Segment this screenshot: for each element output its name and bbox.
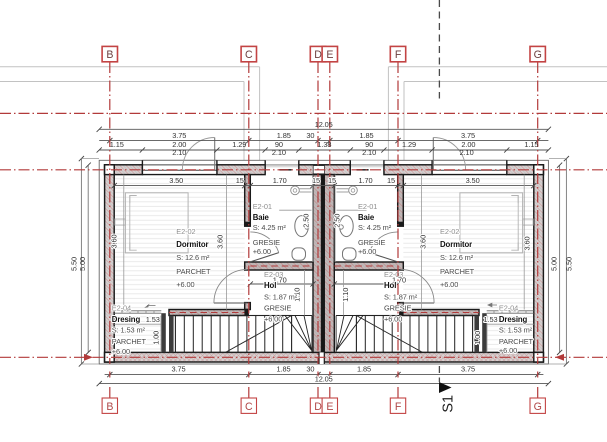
svg-text:1.15: 1.15 bbox=[110, 140, 124, 149]
svg-text:15: 15 bbox=[328, 176, 336, 185]
svg-text:+6.00: +6.00 bbox=[499, 346, 517, 355]
svg-text:Dormitor: Dormitor bbox=[176, 240, 208, 249]
svg-text:1.29: 1.29 bbox=[232, 140, 246, 149]
svg-text:1.38: 1.38 bbox=[317, 140, 331, 149]
svg-text:C: C bbox=[245, 49, 253, 61]
svg-text:1.10: 1.10 bbox=[341, 288, 350, 302]
svg-text:S1: S1 bbox=[441, 395, 457, 413]
svg-text:3.60: 3.60 bbox=[110, 235, 119, 249]
svg-text:E: E bbox=[326, 401, 333, 413]
svg-text:D: D bbox=[314, 49, 322, 61]
svg-text:2.50: 2.50 bbox=[302, 214, 311, 228]
svg-text:15: 15 bbox=[387, 176, 395, 185]
svg-text:D: D bbox=[314, 401, 322, 413]
svg-text:12.05: 12.05 bbox=[315, 120, 333, 129]
svg-text:3.75: 3.75 bbox=[461, 365, 475, 374]
svg-text:5.00: 5.00 bbox=[78, 257, 87, 271]
svg-text:2.50: 2.50 bbox=[332, 214, 341, 228]
svg-text:Baie: Baie bbox=[358, 213, 375, 222]
svg-text:+6.00: +6.00 bbox=[176, 280, 194, 289]
svg-text:F: F bbox=[395, 401, 402, 413]
svg-text:Hol: Hol bbox=[264, 281, 276, 290]
svg-text:F: F bbox=[395, 49, 402, 61]
svg-text:E2-04: E2-04 bbox=[499, 304, 518, 313]
svg-text:B: B bbox=[106, 49, 113, 61]
svg-text:12.05: 12.05 bbox=[315, 374, 333, 383]
svg-text:1.00: 1.00 bbox=[473, 331, 482, 345]
svg-text:GRESIE: GRESIE bbox=[264, 303, 291, 312]
svg-text:B: B bbox=[106, 401, 113, 413]
svg-text:15: 15 bbox=[312, 176, 320, 185]
svg-text:Dresing: Dresing bbox=[499, 315, 528, 324]
svg-text:PARCHET: PARCHET bbox=[176, 267, 211, 276]
svg-text:3.60: 3.60 bbox=[522, 237, 531, 251]
svg-text:E2-01: E2-01 bbox=[253, 202, 272, 211]
svg-text:E2-01: E2-01 bbox=[358, 202, 377, 211]
svg-text:PARCHET: PARCHET bbox=[440, 267, 475, 276]
svg-text:1.70: 1.70 bbox=[273, 176, 287, 185]
svg-text:1.29: 1.29 bbox=[402, 140, 416, 149]
svg-text:S: 1.87 m²: S: 1.87 m² bbox=[264, 292, 298, 301]
svg-text:E2-02: E2-02 bbox=[440, 227, 459, 236]
svg-text:S: 12.6 m²: S: 12.6 m² bbox=[440, 253, 474, 262]
svg-text:3.75: 3.75 bbox=[461, 131, 475, 140]
svg-text:S: 12.6 m²: S: 12.6 m² bbox=[176, 253, 210, 262]
svg-text:+6.00: +6.00 bbox=[384, 314, 402, 323]
svg-text:S: 4.25 m²: S: 4.25 m² bbox=[253, 223, 287, 232]
svg-text:5.00: 5.00 bbox=[549, 257, 558, 271]
svg-text:1.85: 1.85 bbox=[360, 131, 374, 140]
svg-text:+6.00: +6.00 bbox=[264, 314, 282, 323]
svg-text:2.10: 2.10 bbox=[362, 148, 376, 157]
svg-text:S: 1.53 m²: S: 1.53 m² bbox=[499, 326, 533, 335]
svg-text:Dresing: Dresing bbox=[112, 315, 141, 324]
svg-text:+6.00: +6.00 bbox=[358, 247, 376, 256]
svg-text:Baie: Baie bbox=[253, 213, 270, 222]
svg-text:E2-02: E2-02 bbox=[176, 227, 195, 236]
svg-text:+6.00: +6.00 bbox=[253, 247, 271, 256]
svg-text:GRESIE: GRESIE bbox=[384, 303, 411, 312]
svg-text:30: 30 bbox=[306, 365, 314, 374]
svg-text:S: 4.25 m²: S: 4.25 m² bbox=[358, 223, 392, 232]
svg-text:3.50: 3.50 bbox=[169, 176, 183, 185]
svg-text:G: G bbox=[534, 401, 542, 413]
svg-text:3.75: 3.75 bbox=[172, 131, 186, 140]
svg-text:1.15: 1.15 bbox=[524, 140, 538, 149]
svg-text:+6.00: +6.00 bbox=[440, 280, 458, 289]
svg-text:1.53: 1.53 bbox=[146, 315, 160, 324]
svg-text:3.75: 3.75 bbox=[172, 365, 186, 374]
svg-text:15: 15 bbox=[236, 176, 244, 185]
svg-text:2.10: 2.10 bbox=[460, 148, 474, 157]
svg-text:Hol: Hol bbox=[384, 281, 396, 290]
svg-text:3.60: 3.60 bbox=[419, 235, 428, 249]
svg-text:G: G bbox=[534, 49, 542, 61]
svg-text:1.85: 1.85 bbox=[277, 365, 291, 374]
svg-text:1.53: 1.53 bbox=[484, 315, 498, 324]
svg-text:1.85: 1.85 bbox=[357, 365, 371, 374]
svg-text:C: C bbox=[245, 401, 253, 413]
svg-text:GRESIE: GRESIE bbox=[358, 238, 385, 247]
svg-text:Dormitor: Dormitor bbox=[440, 240, 472, 249]
svg-text:3.50: 3.50 bbox=[466, 176, 480, 185]
svg-text:1.85: 1.85 bbox=[277, 131, 291, 140]
svg-text:PARCHET: PARCHET bbox=[112, 337, 147, 346]
svg-text:3.60: 3.60 bbox=[215, 235, 224, 249]
svg-text:+6.00: +6.00 bbox=[112, 347, 130, 356]
svg-text:2.10: 2.10 bbox=[172, 148, 186, 157]
svg-text:S: 1.53 m²: S: 1.53 m² bbox=[112, 326, 146, 335]
svg-text:1.00: 1.00 bbox=[151, 331, 160, 345]
svg-text:S: 1.87 m²: S: 1.87 m² bbox=[384, 292, 418, 301]
svg-text:30: 30 bbox=[306, 131, 314, 140]
svg-text:GRESIE: GRESIE bbox=[253, 238, 280, 247]
svg-text:E2-04: E2-04 bbox=[112, 304, 131, 313]
svg-text:5.50: 5.50 bbox=[564, 257, 573, 271]
svg-text:E: E bbox=[326, 49, 333, 61]
svg-text:2.10: 2.10 bbox=[272, 148, 286, 157]
svg-text:1.70: 1.70 bbox=[359, 176, 373, 185]
